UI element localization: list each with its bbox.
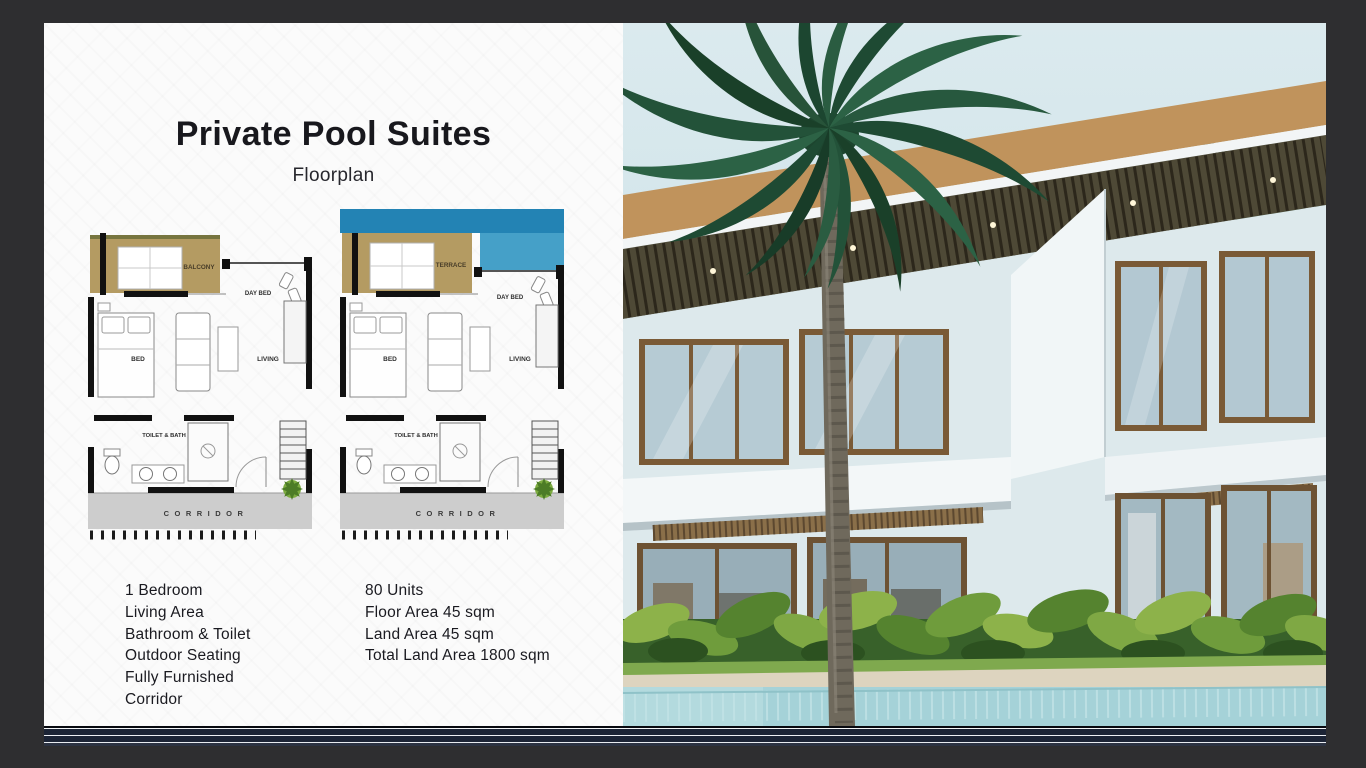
page-subtitle: Floorplan: [44, 165, 623, 187]
bath-label: TOILET & BATH: [142, 433, 186, 439]
corridor-zone: CORRIDOR: [340, 493, 564, 535]
bath-label: TOILET & BATH: [394, 433, 438, 439]
daybed-zone: DAY BED: [222, 257, 312, 305]
outdoor-zone: BALCONY: [90, 235, 220, 293]
list-item: Bathroom & Toilet: [125, 624, 250, 646]
window: [639, 339, 789, 465]
bathroom-zone: TOILET & BATH: [104, 421, 306, 487]
list-item: Land Area 45 sqm: [365, 624, 550, 646]
bed-label: BED: [131, 356, 145, 363]
list-item: 80 Units: [365, 580, 550, 602]
features-list: 1 Bedroom Living Area Bathroom & Toilet …: [125, 580, 250, 711]
list-item: Fully Furnished: [125, 667, 250, 689]
presentation-slide: Private Pool Suites Floorplan CORRIDOR B…: [44, 23, 1326, 726]
daybed-label: DAY BED: [245, 291, 272, 297]
list-item: Living Area: [125, 602, 250, 624]
corridor-label: CORRIDOR: [416, 509, 501, 518]
app-background: { "slide": { "title": "Private Pool Suit…: [0, 0, 1366, 768]
window: [1115, 261, 1207, 431]
corridor-zone: CORRIDOR: [88, 493, 312, 535]
daybed-label: DAY BED: [497, 295, 524, 301]
outdoor-label: TERRACE: [436, 262, 466, 269]
bottom-stripe-band: [44, 726, 1326, 750]
bedroom-zone: BED: [98, 303, 154, 397]
list-item: Outdoor Seating: [125, 645, 250, 667]
render-illustration: [623, 23, 1326, 726]
list-item: Corridor: [125, 689, 250, 711]
ceiling-light: [710, 268, 716, 274]
bedroom-zone: BED: [350, 303, 406, 397]
ceiling-light: [850, 245, 856, 251]
floorplan-pool-unit: CORRIDOR TERRACE DAY BED: [340, 209, 568, 541]
bathroom-zone: TOILET & BATH: [356, 421, 558, 487]
outdoor-zone: TERRACE: [342, 233, 472, 293]
list-item: Total Land Area 1800 sqm: [365, 645, 550, 667]
bed-label: BED: [383, 356, 397, 363]
window: [1219, 251, 1315, 423]
daybed-zone: DAY BED: [474, 265, 564, 309]
floorplan-panel: Private Pool Suites Floorplan CORRIDOR B…: [44, 23, 623, 726]
list-item: 1 Bedroom: [125, 580, 250, 602]
specs-list: 80 Units Floor Area 45 sqm Land Area 45 …: [365, 580, 550, 667]
ceiling-light: [1270, 177, 1276, 183]
outdoor-label: BALCONY: [183, 264, 215, 271]
corridor-label: CORRIDOR: [164, 509, 249, 518]
floorplan-balcony-unit: CORRIDOR BALCONY DAY BED: [88, 209, 316, 541]
living-zone: LIVING: [428, 305, 558, 391]
living-label: LIVING: [509, 356, 531, 363]
pool: [623, 687, 1326, 726]
building-render-photo: [623, 23, 1326, 726]
list-item: Floor Area 45 sqm: [365, 602, 550, 624]
window: [799, 329, 949, 455]
page-title: Private Pool Suites: [44, 115, 623, 154]
living-zone: LIVING: [176, 301, 306, 391]
ceiling-light: [1130, 200, 1136, 206]
ceiling-light: [990, 222, 996, 228]
living-label: LIVING: [257, 356, 279, 363]
